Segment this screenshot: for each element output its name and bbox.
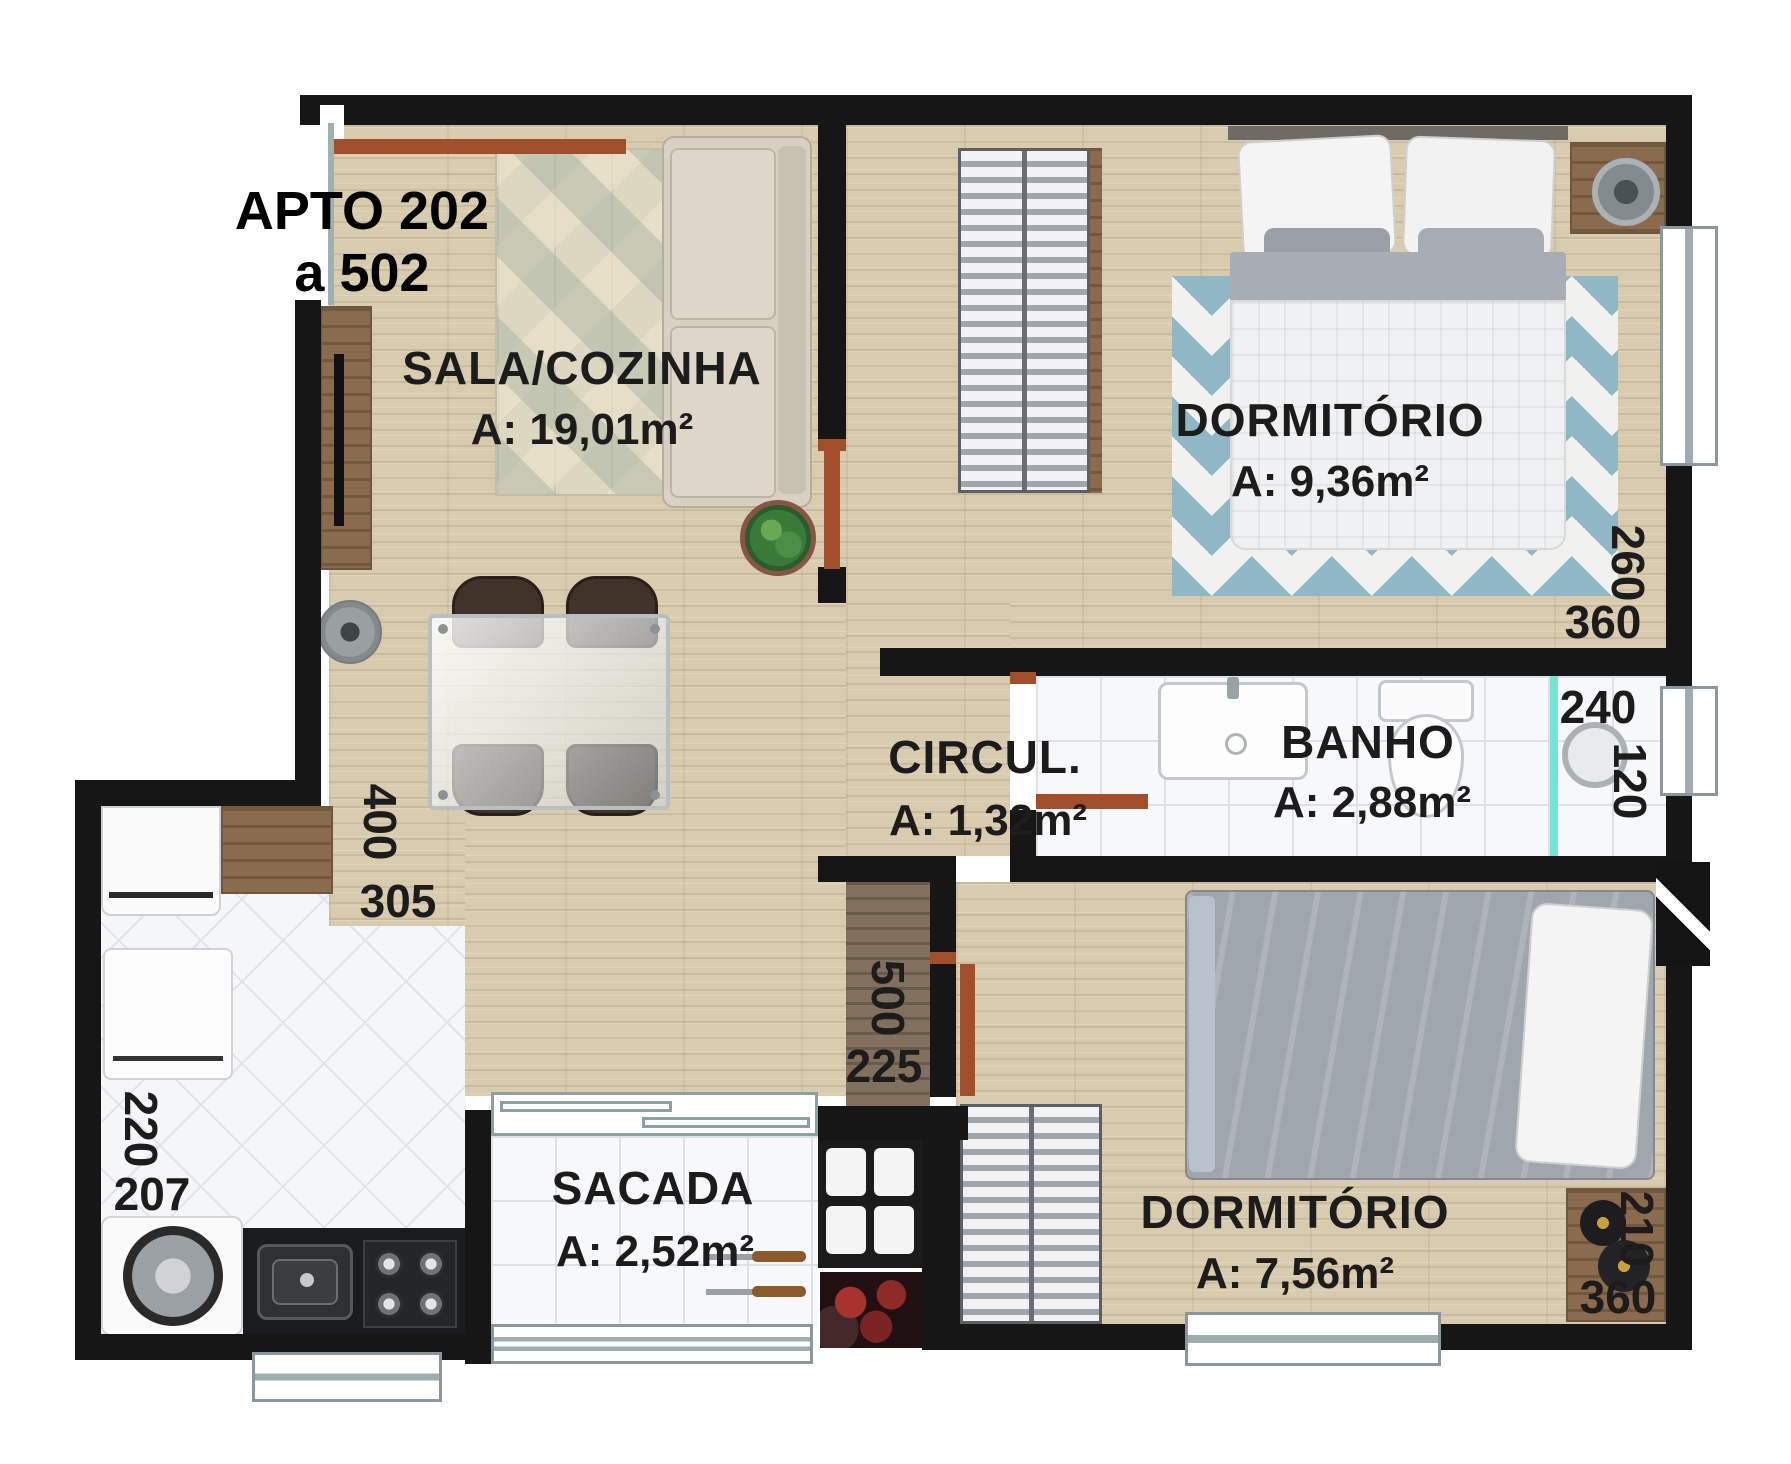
bedroom1-label: DORMITÓRIO	[1176, 393, 1485, 447]
balcony-post	[465, 1324, 491, 1364]
living-room-area: A: 19,01m²	[471, 405, 694, 455]
bedroom2-door	[960, 964, 975, 1096]
grill-side-wall	[922, 1132, 960, 1350]
hall-wall-south-left	[818, 856, 956, 882]
table-leg	[438, 624, 448, 634]
sliding-panel	[642, 1117, 810, 1128]
table-leg	[438, 790, 448, 800]
wardrobe-divider	[1022, 151, 1027, 490]
bedroom1-wall-south	[880, 648, 1692, 676]
blanket-edge	[1189, 896, 1215, 1172]
kitchen-sink	[257, 1244, 353, 1320]
sofa-backrest	[778, 146, 806, 494]
dim-bedroom1-width: 360	[1565, 595, 1642, 649]
sink-faucet	[300, 1273, 314, 1287]
wardrobe-divider	[1029, 1107, 1034, 1321]
bathroom-window	[1660, 686, 1718, 796]
balcony-area: A: 2,52m²	[556, 1227, 754, 1277]
dim-bedroom2-width: 360	[1580, 1270, 1657, 1324]
bedroom1-partition	[818, 121, 846, 445]
sofa-cushion	[670, 148, 776, 320]
fridge-door-edge	[113, 1056, 223, 1061]
dim-kitchen-width: 207	[114, 1167, 191, 1221]
charcoal-tray	[820, 1272, 922, 1348]
bedroom1-partition-stub	[818, 567, 846, 603]
burner	[375, 1250, 403, 1278]
balcony-railing	[491, 1324, 813, 1364]
barbecue-grill	[818, 1140, 922, 1268]
kitchen-wall-step	[75, 780, 321, 806]
potted-plant	[740, 500, 816, 576]
bedroom1-area: A: 9,36m²	[1231, 457, 1429, 507]
living-room-label: SALA/COZINHA	[402, 341, 762, 395]
plan-title-line2: a 502	[212, 242, 512, 304]
floor-plan: { "title": { "line1": "APTO 202", "line2…	[0, 0, 1791, 1464]
grill-tile	[826, 1206, 866, 1254]
door-jamb	[818, 439, 846, 451]
hall-label: CIRCUL.	[888, 730, 1082, 784]
duct-shaft	[1656, 862, 1710, 966]
sliding-panel	[500, 1101, 672, 1112]
balcony-sliding-door	[491, 1092, 818, 1136]
plan-title-line1: APTO 202	[212, 180, 512, 242]
table-leg	[650, 624, 660, 634]
dishwasher	[101, 806, 221, 916]
wardrobe-bedroom2	[960, 1104, 1102, 1324]
grill-tile	[826, 1148, 866, 1196]
dim-bathroom-width: 240	[1560, 680, 1637, 734]
faucet	[1227, 677, 1239, 699]
kitchen-wood-counter	[221, 806, 333, 894]
dim-bedroom2-depth: 210	[1610, 1191, 1664, 1268]
living-wall-left	[295, 300, 321, 780]
bathroom-label: BANHO	[1281, 715, 1455, 769]
bathroom-area: A: 2,88m²	[1273, 778, 1471, 828]
wardrobe-frame	[1090, 148, 1102, 493]
skewer-handle	[752, 1251, 806, 1262]
table-leg	[650, 790, 660, 800]
dim-hall-depth: 500	[861, 960, 915, 1037]
plan-title: APTO 202 a 502	[212, 180, 512, 304]
washer-drum	[123, 1226, 223, 1326]
single-bed	[1185, 890, 1655, 1180]
pillow	[1514, 902, 1654, 1170]
table-lamp	[1592, 158, 1660, 226]
bedroom2-area: A: 7,56m²	[1196, 1249, 1394, 1299]
glass-dining-table	[428, 614, 670, 810]
kitchen-wall-left	[75, 780, 101, 1360]
granite-counter	[243, 1228, 465, 1336]
tv	[334, 354, 344, 526]
dim-living-width: 305	[360, 874, 437, 928]
dim-kitchen-depth: 220	[114, 1091, 168, 1168]
bedroom2-label: DORMITÓRIO	[1141, 1185, 1450, 1239]
hall-corridor-wall	[930, 882, 956, 1097]
burner	[417, 1250, 445, 1278]
kitchen-window	[252, 1352, 442, 1402]
dim-bedroom1-depth: 260	[1601, 525, 1655, 602]
dim-bathroom-depth: 120	[1603, 743, 1657, 820]
bedroom1-door	[824, 451, 840, 569]
hall-area: A: 1,32m²	[889, 796, 1087, 846]
dim-living-depth: 400	[353, 784, 407, 861]
drain	[1225, 733, 1247, 755]
dim-hall-width: 225	[846, 1039, 923, 1093]
bathroom-wall-left-top	[1010, 648, 1036, 672]
bathroom-wall-south	[1010, 856, 1692, 882]
door-jamb	[1010, 672, 1036, 684]
skewer-handle	[752, 1286, 806, 1297]
wardrobe-bedroom1	[958, 148, 1090, 493]
exterior-wall-top	[300, 95, 1692, 125]
washing-machine	[101, 1216, 243, 1336]
bedroom1-window	[1660, 226, 1718, 466]
entry-door	[334, 139, 626, 154]
headboard	[1228, 126, 1568, 140]
grill-tile	[874, 1206, 914, 1254]
cooktop	[363, 1240, 457, 1328]
grill-tile	[874, 1148, 914, 1196]
skewer	[706, 1289, 754, 1295]
balcony-label: SACADA	[552, 1161, 755, 1215]
burner	[375, 1290, 403, 1318]
appliance-front-edge	[109, 892, 213, 898]
door-jamb	[930, 952, 956, 964]
shower-glass-partition	[1550, 676, 1558, 856]
fridge	[103, 948, 233, 1080]
tv-cabinet	[320, 306, 372, 570]
bedroom2-window	[1185, 1312, 1441, 1366]
decor-vase	[318, 600, 382, 664]
burner	[417, 1290, 445, 1318]
